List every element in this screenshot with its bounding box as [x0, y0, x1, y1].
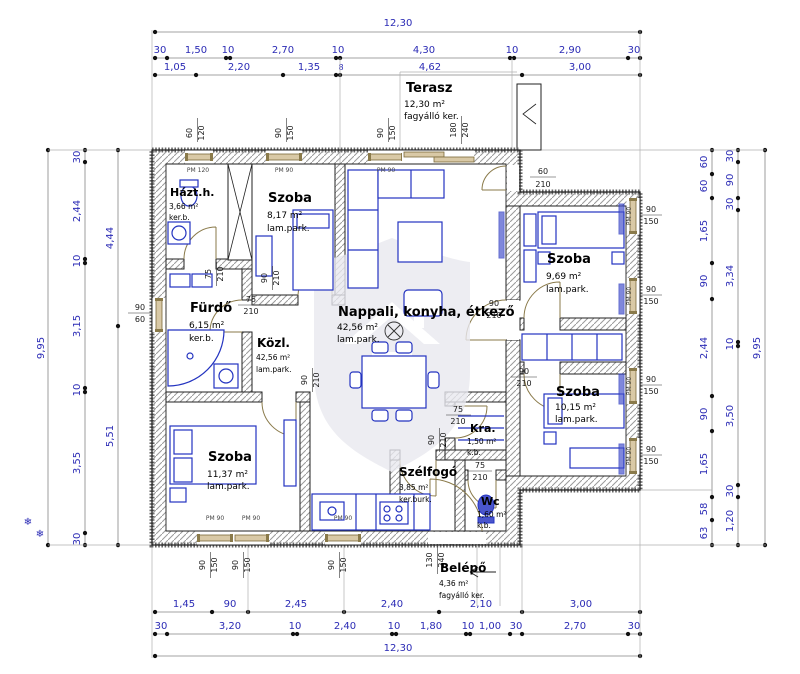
- opening-size: 90: [327, 560, 336, 570]
- parapet-label: PM 90: [275, 167, 294, 174]
- opening-size: 210: [439, 432, 448, 447]
- opening-size: 210: [535, 180, 550, 189]
- room-name: Wc: [481, 495, 500, 508]
- opening-size: 90: [260, 273, 269, 283]
- parapet-label: PM 90: [334, 515, 353, 522]
- opening-size: 75: [453, 405, 463, 414]
- dim-label: 30: [628, 45, 641, 56]
- terrace-column: [517, 84, 541, 150]
- dim-label: 30: [725, 485, 736, 498]
- room-finish: ker.b.: [189, 334, 214, 344]
- parapet-label: PM 90: [626, 377, 633, 396]
- room-name: Szélfogó: [399, 465, 457, 479]
- dim-label: 30: [72, 151, 83, 164]
- opening-size: 210: [450, 417, 465, 426]
- dim-label: 1,80: [420, 621, 442, 632]
- room-area: 11,37 m²: [207, 470, 248, 480]
- dim-label: 4,44: [105, 227, 116, 249]
- opening-size: 90: [427, 435, 436, 445]
- dim-label: 90: [224, 599, 237, 610]
- bathroom-fixtures: [168, 274, 238, 388]
- opening-size: 60: [185, 128, 194, 138]
- dim-label: 3,34: [725, 265, 736, 287]
- dim-label: 10: [725, 338, 736, 351]
- opening-size: 210: [312, 372, 321, 387]
- opening-size: 240: [461, 122, 470, 137]
- dim-label: 8: [338, 63, 343, 72]
- room-finish: lam.park.: [555, 415, 598, 425]
- dim-label: 10: [72, 384, 83, 397]
- dim-label: 60: [699, 156, 710, 169]
- opening-size: 90: [646, 375, 656, 384]
- parapet-label: PM 90: [206, 515, 225, 522]
- opening-size: 150: [643, 387, 658, 396]
- top-dimension-chain: 12,30 30 1,50 10 2,70 10 4,30 10 2,90 30…: [154, 18, 641, 75]
- room-finish: ker.b.: [169, 213, 190, 222]
- dim-label: 10: [332, 45, 345, 56]
- dim-label: 9,95: [752, 337, 763, 359]
- room-name: Szoba: [547, 252, 591, 267]
- room-finish: lam.park.: [256, 365, 292, 374]
- parapet-label: PM 90: [242, 515, 261, 522]
- room-finish: fagyálló ker.: [439, 591, 485, 600]
- opening-size: 75: [475, 461, 485, 470]
- parapet-label: PM 90: [626, 207, 633, 226]
- room-area: 42,56 m²: [256, 353, 290, 362]
- dim-label: 2,90: [559, 45, 581, 56]
- opening-size: 90: [646, 445, 656, 454]
- room-finish: lam.park.: [337, 335, 380, 345]
- room-name: Nappali, konyha, étkező: [338, 305, 515, 320]
- room-area: 6,15 m²: [189, 321, 225, 331]
- dim-label: 30: [154, 45, 167, 56]
- shaft: [228, 164, 252, 260]
- opening-size: 90: [646, 205, 656, 214]
- room-area: 12,30 m²: [404, 100, 445, 110]
- room-area: 10,15 m²: [555, 403, 596, 413]
- room-name: Közl.: [257, 336, 290, 350]
- opening-size: 150: [339, 557, 348, 572]
- dim-label: 1,50: [185, 45, 207, 56]
- opening-size: 60: [538, 167, 548, 176]
- dim-label: 2,44: [72, 200, 83, 222]
- dim-label: 1,20: [725, 510, 736, 532]
- room-area: 1,50 m²: [467, 437, 496, 446]
- dim-label: 30: [628, 621, 641, 632]
- dim-label: 12,30: [384, 643, 413, 654]
- dim-label: 3,20: [219, 621, 241, 632]
- dim-label: 2,45: [285, 599, 307, 610]
- dim-label: 1,35: [298, 62, 320, 73]
- snowflake-icon: ❄: [24, 517, 32, 528]
- opening-size: 90: [274, 128, 283, 138]
- dim-label: 1,65: [699, 453, 710, 475]
- dim-label: 30: [510, 621, 523, 632]
- room-finish: ker.burk.: [399, 495, 432, 504]
- dim-label: 2,20: [228, 62, 250, 73]
- opening-size: 210: [272, 270, 281, 285]
- parapet-label: PM 120: [187, 167, 209, 174]
- opening-size: 60: [135, 315, 145, 324]
- dim-label: 2,10: [470, 599, 492, 610]
- dim-label: 2,70: [272, 45, 294, 56]
- floor-plan-drawing: 12,30 30 1,50 10 2,70 10 4,30 10 2,90 30…: [0, 0, 800, 669]
- dim-label: 30: [155, 621, 168, 632]
- terrace: Terasz 12,30 m² fagyálló ker.: [400, 72, 541, 150]
- room-name: Szoba: [208, 450, 252, 465]
- room-area: 1,60 m²: [477, 510, 506, 519]
- opening-size: 150: [388, 125, 397, 140]
- entrance-porch: Belépő 4,36 m² fagyálló ker.: [439, 545, 500, 606]
- room-area: 3,85 m²: [399, 483, 428, 492]
- dim-label: 3,15: [72, 315, 83, 337]
- opening-size: 90: [519, 367, 529, 376]
- dim-label: 3,00: [570, 599, 592, 610]
- room-finish: lam.park.: [546, 285, 589, 295]
- dim-label: 60: [699, 180, 710, 193]
- room-area: 3,66 m²: [169, 202, 198, 211]
- dim-label: 4,62: [419, 62, 441, 73]
- room-name: Terasz: [406, 81, 452, 96]
- opening-size: 150: [286, 125, 295, 140]
- dim-label: 2,40: [334, 621, 356, 632]
- room-name: Házt.h.: [170, 186, 214, 199]
- bottom-dimension-chain: 1,45 90 2,45 2,40 2,10 3,00 30 3,20 10 2…: [155, 599, 641, 656]
- snowflake-icon: ❄: [36, 529, 44, 540]
- dim-label: 90: [699, 408, 710, 421]
- room-finish: fagyálló ker.: [404, 111, 459, 122]
- room-finish: lam.park.: [207, 482, 250, 492]
- dim-label: 2,70: [564, 621, 586, 632]
- dim-label: 10: [388, 621, 401, 632]
- room-name: Kra.: [470, 422, 496, 435]
- dim-label: 10: [72, 255, 83, 268]
- dim-label: 58: [699, 503, 710, 516]
- opening-size: 210: [243, 307, 258, 316]
- right-dimension-chain: 60 60 1,65 90 2,44 90 1,65 58 63 30 90 3…: [699, 150, 765, 545]
- dim-label: 30: [72, 533, 83, 546]
- dim-label: 10: [462, 621, 475, 632]
- opening-size: 90: [376, 128, 385, 138]
- opening-size: 75: [246, 295, 256, 304]
- room-area: 4,36 m²: [439, 579, 468, 588]
- opening-size: 90: [300, 375, 309, 385]
- opening-size: 90: [198, 560, 207, 570]
- dim-label: 63: [699, 527, 710, 540]
- dim-label: 3,00: [569, 62, 591, 73]
- opening-size: 150: [210, 557, 219, 572]
- dim-label: 3,50: [725, 405, 736, 427]
- opening-size: 210: [516, 379, 531, 388]
- room-area: 9,69 m²: [546, 272, 582, 282]
- washer-hazth: [168, 222, 190, 244]
- room-name: Belépő: [440, 561, 486, 575]
- room-name: Fürdő: [190, 301, 232, 316]
- opening-size: 150: [643, 297, 658, 306]
- opening-size: 90: [646, 285, 656, 294]
- dim-label: 2,40: [381, 599, 403, 610]
- opening-size: 90: [135, 303, 145, 312]
- dim-label: 9,95: [36, 337, 47, 359]
- dim-label: 10: [222, 45, 235, 56]
- dim-label: 1,65: [699, 220, 710, 242]
- opening-size: 75: [204, 269, 213, 279]
- room-area: 8,17 m²: [267, 211, 303, 221]
- opening-size: 130: [425, 552, 434, 567]
- coffee-table: [398, 222, 442, 262]
- opening-size: 90: [231, 560, 240, 570]
- left-dimension-chain: 9,95 30 2,44 10 3,15 10 3,55 30 4,44 5,5…: [24, 150, 118, 545]
- opening-size: 120: [197, 125, 206, 140]
- dim-label: 1,05: [164, 62, 186, 73]
- dim-label: 10: [506, 45, 519, 56]
- room-name: Szoba: [556, 385, 600, 400]
- room-finish: k.b.: [477, 521, 491, 530]
- dim-label: 2,44: [699, 337, 710, 359]
- dim-label: 30: [725, 198, 736, 211]
- parapet-label: PM 90: [626, 447, 633, 466]
- room-area: 42,56 m²: [337, 323, 378, 333]
- room-name: Szoba: [268, 191, 312, 206]
- dim-label: 3,55: [72, 452, 83, 474]
- dim-label: 90: [699, 275, 710, 288]
- dim-label: 1,45: [173, 599, 195, 610]
- room-finish: k.b.: [467, 448, 481, 457]
- room-finish: lam.park.: [267, 224, 310, 234]
- opening-size: 150: [243, 557, 252, 572]
- parapet-label: PM 90: [377, 167, 396, 174]
- parapet-label: PM 90: [626, 287, 633, 306]
- dim-label: 4,30: [413, 45, 435, 56]
- wardrobe-corridor: [522, 334, 622, 360]
- dim-label: 90: [725, 174, 736, 187]
- opening-size: 210: [472, 473, 487, 482]
- floor-plan-page: 12,30 30 1,50 10 2,70 10 4,30 10 2,90 30…: [0, 0, 800, 669]
- dim-label: 12,30: [384, 18, 413, 29]
- opening-size: 180: [449, 122, 458, 137]
- opening-size: 150: [643, 457, 658, 466]
- opening-size: 150: [643, 217, 658, 226]
- dim-label: 5,51: [105, 425, 116, 447]
- dim-label: 30: [725, 150, 736, 163]
- dim-label: 1,00: [479, 621, 501, 632]
- opening-size: 210: [216, 266, 225, 281]
- dim-label: 10: [289, 621, 302, 632]
